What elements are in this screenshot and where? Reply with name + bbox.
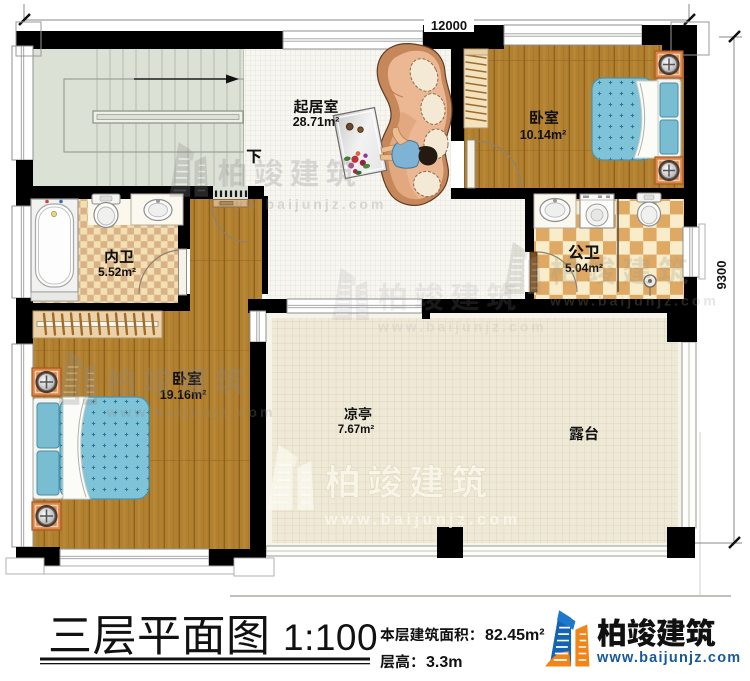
svg-text:www.baijunjz.com: www.baijunjz.com	[106, 404, 276, 420]
svg-text:9300: 9300	[714, 261, 729, 290]
svg-text:www.baijunjz.com: www.baijunjz.com	[549, 293, 719, 309]
svg-text:www.baijunjz.com: www.baijunjz.com	[596, 650, 741, 666]
svg-text:3.3m: 3.3m	[426, 654, 462, 671]
svg-text:10.14m²: 10.14m²	[520, 128, 567, 142]
svg-text:7.67m²: 7.67m²	[338, 424, 375, 436]
svg-text:www.baijunjz.com: www.baijunjz.com	[377, 319, 547, 335]
svg-text:28.71m²: 28.71m²	[293, 115, 340, 129]
svg-text:www.baijunjz.com: www.baijunjz.com	[324, 511, 521, 528]
svg-text:12000: 12000	[431, 18, 467, 33]
svg-text:82.45m²: 82.45m²	[485, 627, 545, 644]
svg-text:www.baijunjz.com: www.baijunjz.com	[217, 196, 387, 212]
svg-text:1:100: 1:100	[283, 617, 378, 658]
svg-text:5.52m²: 5.52m²	[98, 265, 136, 279]
